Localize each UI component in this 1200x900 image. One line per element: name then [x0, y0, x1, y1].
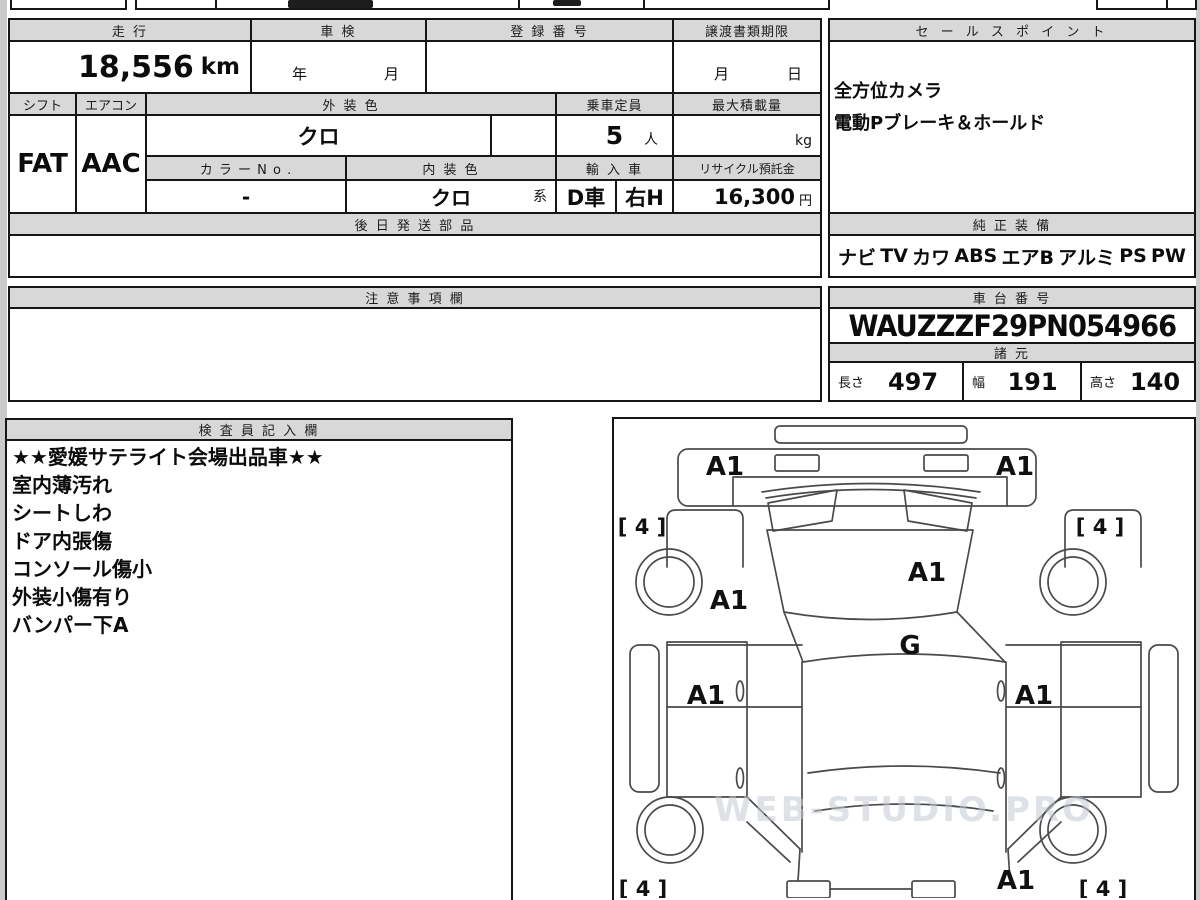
- tire-mark-front-left: [ 4 ]: [618, 515, 666, 539]
- specs-header-label: 諸 元: [994, 343, 1030, 362]
- recycle-deposit-value: 16,300: [714, 185, 795, 209]
- interior-color-header: 内 装 色: [345, 155, 557, 181]
- shift-header-label: シフト: [23, 95, 62, 114]
- cutoff-cell: [518, 0, 645, 10]
- equipment-header: 純 正 装 備: [828, 212, 1196, 236]
- sales-points-header: セ ー ル ス ポ イ ン ト: [828, 18, 1196, 42]
- tire-mark-rear-right: [ 4 ]: [1079, 877, 1127, 898]
- inspector-header: 検 査 員 記 入 欄: [5, 418, 513, 441]
- max-load-header-label: 最大積載量: [712, 95, 782, 114]
- recycle-deposit-header: リサイクル預託金: [672, 155, 822, 181]
- specs-header: 諸 元: [828, 342, 1196, 363]
- sales-points-header-label: セ ー ル ス ポ イ ン ト: [916, 21, 1109, 40]
- cutoff-text-fragment: [553, 0, 581, 6]
- aircon-header-label: エアコン: [85, 95, 137, 114]
- sales-points-body: 全方位カメラ 電動Pブレーキ＆ホールド: [828, 40, 1196, 214]
- chassis-number: WAUZZZF29PN054966: [848, 309, 1176, 343]
- transfer-deadline-value-cell: 月 日: [672, 40, 822, 94]
- auction-sheet: 走 行 車 検 登 録 番 号 譲渡書類期限 18,556 km 年 月 月 日…: [0, 0, 1200, 900]
- chassis-header-label: 車 台 番 号: [973, 288, 1051, 307]
- equipment-body: ナビ TV カワ ABS エアB アルミ PS PW: [828, 234, 1196, 278]
- mark-front-bumper-left: A1: [706, 452, 744, 482]
- chassis-value-cell: WAUZZZF29PN054966: [828, 307, 1196, 344]
- interior-color-header-label: 内 装 色: [422, 159, 479, 178]
- capacity-value-cell: 5 人: [555, 114, 674, 157]
- shift-value-cell: FAT: [8, 114, 77, 214]
- capacity-unit: 人: [644, 129, 658, 149]
- notes-header-label: 注 意 事 項 欄: [365, 288, 465, 307]
- later-parts-header-label: 後 日 発 送 部 品: [355, 215, 476, 234]
- length-label: 長さ: [838, 372, 864, 391]
- transfer-day-label: 日: [787, 63, 802, 84]
- mileage-value: 18,556: [78, 50, 194, 85]
- front-bumper-bar: [775, 426, 967, 443]
- inspector-note-line: コンソール傷小: [12, 555, 507, 583]
- inspector-note-line: 外装小傷有り: [12, 583, 507, 611]
- equipment-item: ナビ: [838, 243, 876, 270]
- equipment-item: PW: [1151, 245, 1186, 267]
- wheel-front-left: [636, 549, 702, 615]
- mark-hood-left: A1: [710, 586, 748, 616]
- car-diagram-svg: WEB-STUDIO.PRO A1 A1 A1 A1 G A1 A1 A1 [ …: [614, 419, 1194, 898]
- exterior-color-value: クロ: [298, 121, 340, 151]
- cutoff-cell: [135, 0, 217, 10]
- color-no-header-label: カ ラ ー N o .: [200, 159, 292, 178]
- cutoff-cell: [1166, 0, 1197, 10]
- width-cell: 幅 191: [962, 361, 1082, 402]
- transfer-deadline-header: 譲渡書類期限: [672, 18, 822, 42]
- interior-color-value: クロ: [431, 182, 471, 211]
- equipment-item: ABS: [954, 245, 997, 267]
- mark-hood-right: A1: [908, 558, 946, 588]
- registration-header: 登 録 番 号: [425, 18, 674, 42]
- color-no-value-cell: -: [145, 179, 347, 214]
- notes-header: 注 意 事 項 欄: [8, 286, 822, 309]
- wheel-front-right: [1040, 549, 1106, 615]
- notes-body: [8, 307, 822, 402]
- import-handle-value: 右H: [625, 182, 664, 212]
- later-parts-header: 後 日 発 送 部 品: [8, 212, 822, 236]
- cutoff-cell: [643, 0, 830, 10]
- height-value: 140: [1116, 368, 1194, 396]
- length-cell: 長さ 497: [828, 361, 964, 402]
- equipment-header-label: 純 正 装 備: [973, 215, 1051, 234]
- sales-point-line: 全方位カメラ: [834, 76, 1190, 108]
- inspection-value-cell: 年 月: [250, 40, 427, 94]
- import-header: 輸 入 車: [555, 155, 674, 181]
- equipment-item: エアB: [1001, 243, 1053, 270]
- capacity-header-label: 乗車定員: [586, 95, 642, 114]
- height-label: 高さ: [1090, 372, 1116, 391]
- mark-door-right: A1: [1015, 681, 1053, 711]
- inspector-note-line: バンパー下A: [12, 611, 507, 639]
- recycle-deposit-value-cell: 16,300 円: [672, 179, 822, 214]
- equipment-item: アルミ: [1058, 243, 1115, 270]
- inspection-month-label: 月: [384, 63, 399, 84]
- later-parts-value-cell: [8, 234, 822, 278]
- capacity-value: 5: [606, 121, 623, 150]
- cutoff-text-fragment: [288, 0, 373, 8]
- width-value: 191: [985, 368, 1080, 396]
- equipment-item: カワ: [912, 243, 950, 270]
- inspector-note-line: ドア内張傷: [12, 527, 507, 555]
- import-domestic-cell: D車: [555, 179, 617, 214]
- max-load-value-cell: kg: [672, 114, 822, 157]
- interior-color-value-cell: クロ 系: [345, 179, 557, 214]
- inspector-notes: ★★愛媛サテライト会場出品車★★ 室内薄汚れ シートしわ ドア内張傷 コンソール…: [12, 443, 507, 639]
- mileage-header: 走 行: [8, 18, 252, 42]
- inspector-header-label: 検 査 員 記 入 欄: [199, 420, 320, 439]
- aircon-header: エアコン: [75, 92, 147, 116]
- color-no-header: カ ラ ー N o .: [145, 155, 347, 181]
- mileage-header-label: 走 行: [112, 21, 148, 40]
- max-load-header: 最大積載量: [672, 92, 822, 116]
- wheel-rear-left: [637, 797, 703, 863]
- inspector-note-line: ★★愛媛サテライト会場出品車★★: [12, 443, 507, 471]
- color-no-value: -: [242, 185, 250, 209]
- exterior-color-header: 外 装 色: [145, 92, 557, 116]
- transfer-deadline-header-label: 譲渡書類期限: [705, 21, 789, 40]
- cutoff-cell: [1096, 0, 1168, 10]
- inspection-header: 車 検: [250, 18, 427, 42]
- aircon-value: AAC: [81, 149, 140, 179]
- mark-door-left: A1: [687, 681, 725, 711]
- recycle-deposit-unit: 円: [799, 190, 812, 209]
- mileage-value-cell: 18,556 km: [8, 40, 252, 94]
- cutoff-cell: [10, 0, 127, 10]
- capacity-header: 乗車定員: [555, 92, 674, 116]
- door-handles: [737, 681, 1005, 788]
- exterior-color-value-cell: クロ: [145, 114, 492, 157]
- mileage-unit: km: [201, 54, 240, 80]
- inspector-note-line: シートしわ: [12, 499, 507, 527]
- equipment-item: TV: [880, 245, 908, 267]
- exterior-color-header-label: 外 装 色: [322, 95, 379, 114]
- watermark-text: WEB-STUDIO.PRO: [714, 790, 1094, 830]
- height-cell: 高さ 140: [1080, 361, 1196, 402]
- diagram-box: WEB-STUDIO.PRO A1 A1 A1 A1 G A1 A1 A1 [ …: [612, 417, 1196, 900]
- registration-header-label: 登 録 番 号: [510, 21, 588, 40]
- mark-cowl: G: [899, 631, 920, 661]
- registration-value-cell: [425, 40, 674, 94]
- tire-mark-rear-left: [ 4 ]: [619, 877, 667, 898]
- inspector-note-line: 室内薄汚れ: [12, 471, 507, 499]
- max-load-unit: kg: [795, 133, 812, 149]
- equipment-item: PS: [1119, 245, 1147, 267]
- chassis-header: 車 台 番 号: [828, 286, 1196, 309]
- aircon-value-cell: AAC: [75, 114, 147, 214]
- width-label: 幅: [972, 372, 985, 391]
- recycle-deposit-header-label: リサイクル預託金: [699, 160, 794, 177]
- import-header-label: 輸 入 車: [586, 159, 643, 178]
- inspection-header-label: 車 検: [320, 21, 356, 40]
- length-value: 497: [864, 368, 962, 396]
- shift-value: FAT: [17, 149, 68, 179]
- sales-point-line: 電動Pブレーキ＆ホールド: [834, 108, 1190, 140]
- shift-header: シフト: [8, 92, 77, 116]
- interior-color-suffix: 系: [533, 186, 547, 206]
- mark-front-bumper-right: A1: [996, 452, 1034, 482]
- mark-rear-right: A1: [997, 866, 1035, 896]
- import-handle-cell: 右H: [615, 179, 674, 214]
- exterior-color-extra-cell: [490, 114, 557, 157]
- tire-mark-front-right: [ 4 ]: [1076, 515, 1124, 539]
- inspection-year-label: 年: [292, 63, 307, 84]
- import-domestic-value: D車: [567, 182, 605, 212]
- transfer-month-label: 月: [714, 63, 729, 84]
